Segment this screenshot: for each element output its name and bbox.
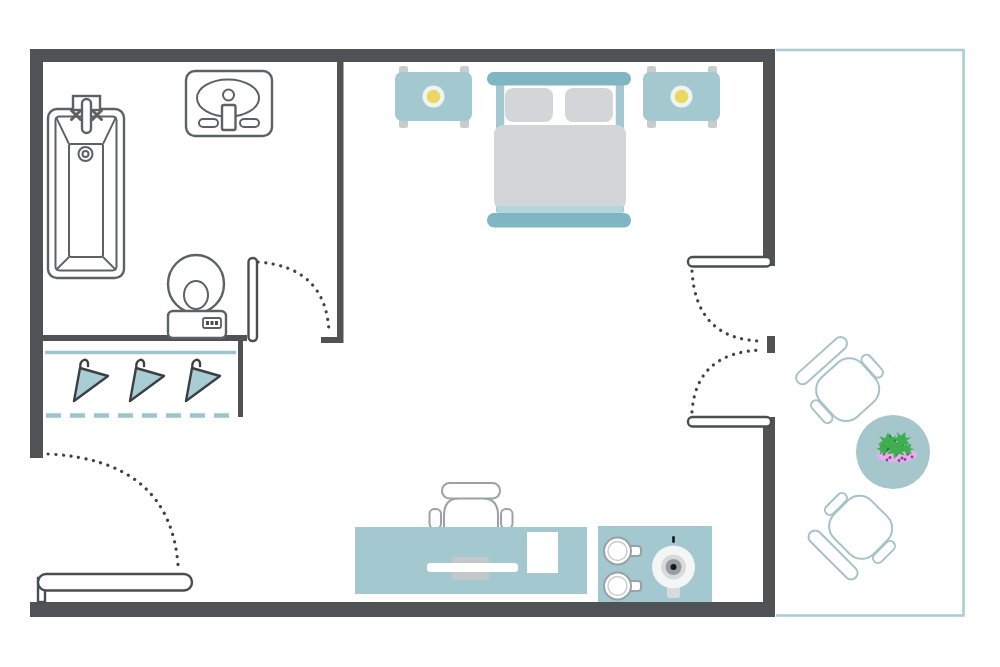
toilet: [168, 255, 226, 338]
office-chair-armrest-right: [501, 509, 513, 529]
pillow-right: [565, 88, 613, 122]
balcony-chair-bottom: [801, 481, 907, 587]
entrance-door-leaf: [38, 574, 192, 591]
nightstand-left: [395, 66, 472, 128]
keyboard-tray: [427, 563, 518, 572]
wall-bathroom-divider-foot: [321, 337, 343, 343]
floor-plan-canvas: [0, 0, 1000, 667]
sink-vanity: [186, 71, 272, 136]
pillow-left: [505, 88, 553, 122]
balcony: [788, 330, 930, 587]
wall-right-lower: [763, 417, 775, 617]
wall-closet-right: [238, 341, 243, 417]
floor-plan: [0, 0, 1000, 667]
bed-headboard: [487, 72, 631, 86]
wall-right-upper: [763, 49, 775, 266]
bathroom-door: [249, 258, 330, 341]
lamp-icon: [427, 90, 441, 104]
toilet-bowl: [168, 255, 224, 313]
bathtub: [48, 96, 124, 278]
bed-footboard: [487, 213, 631, 228]
french-door-upper-leaf: [688, 257, 771, 267]
french-door-lower-leaf: [688, 417, 771, 427]
bathroom-door-swing-arc: [258, 262, 329, 332]
hanger-icon: [74, 360, 108, 401]
wall-bathroom-divider: [337, 62, 344, 343]
office-chair-back: [444, 498, 498, 528]
bathtub-spout: [82, 99, 91, 133]
nightstand-right: [643, 66, 720, 128]
wall-top: [30, 49, 775, 62]
entrance-door-swing-arc: [48, 454, 178, 565]
desk: [355, 527, 587, 594]
wall-french-door-stub: [767, 336, 775, 353]
french-door-upper-swing-arc: [692, 271, 762, 341]
kitchenette-counter: [598, 526, 712, 602]
double-bed: [487, 72, 631, 228]
bathroom-door-leaf: [249, 258, 258, 341]
office-chair: [430, 483, 513, 529]
french-door-lower-swing-arc: [692, 350, 762, 412]
wall-bottom: [30, 602, 775, 617]
office-chair-headrest: [442, 483, 500, 499]
office-chair-armrest-left: [430, 509, 442, 529]
notepad: [527, 532, 558, 573]
entrance-door: [38, 454, 192, 602]
closet: [45, 353, 236, 416]
bed-duvet: [494, 125, 626, 210]
hanger-icon: [130, 360, 164, 401]
wall-left: [30, 49, 43, 458]
hanger-icon: [186, 360, 220, 401]
sink-faucet: [222, 105, 236, 130]
lamp-icon: [675, 90, 689, 104]
french-doors: [688, 257, 771, 427]
